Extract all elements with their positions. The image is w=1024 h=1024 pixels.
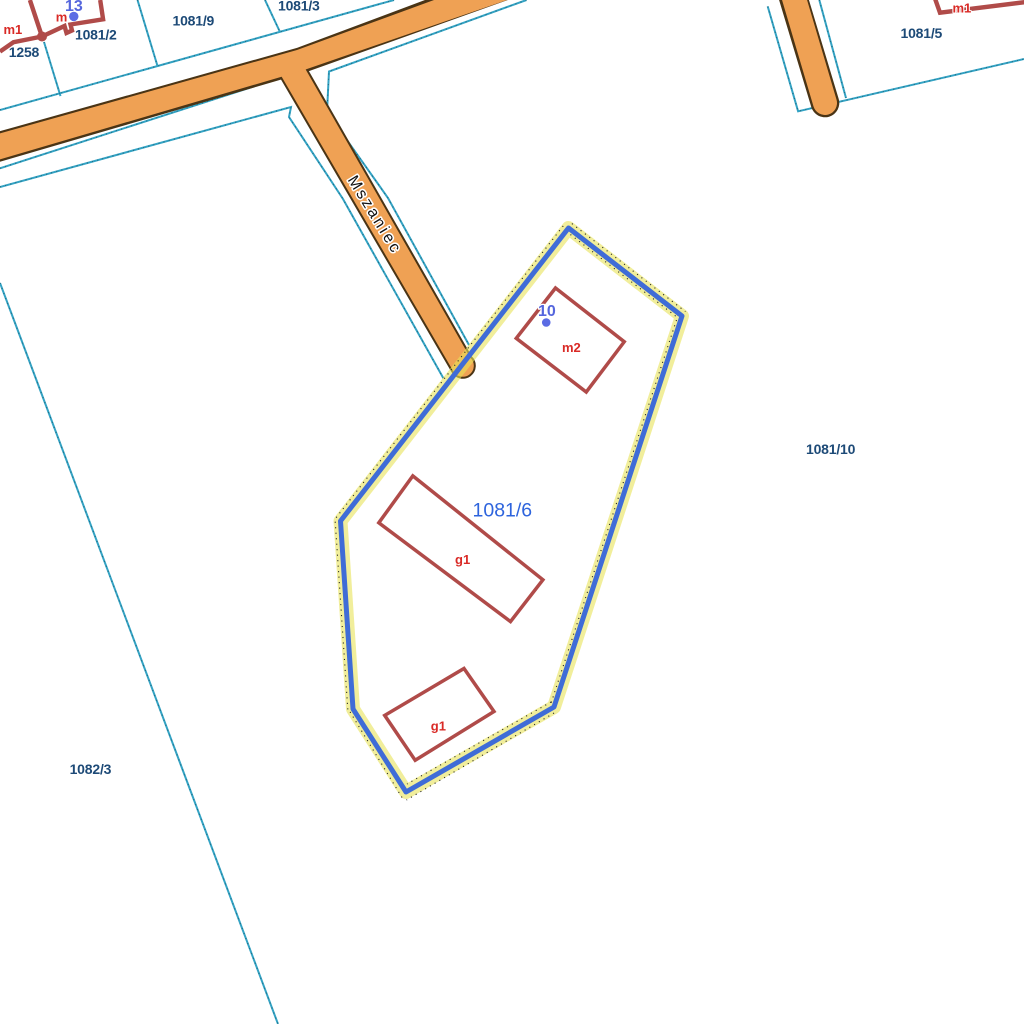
svg-text:m2: m2 xyxy=(562,340,581,355)
svg-text:m1: m1 xyxy=(953,1,972,16)
svg-text:1081/10: 1081/10 xyxy=(806,441,856,457)
svg-text:1081/3: 1081/3 xyxy=(278,0,320,14)
svg-text:g1: g1 xyxy=(431,719,446,734)
svg-text:g1: g1 xyxy=(455,552,470,567)
svg-text:1081/6: 1081/6 xyxy=(473,500,533,522)
svg-text:1082/3: 1082/3 xyxy=(70,761,112,777)
svg-text:1081/5: 1081/5 xyxy=(901,25,943,41)
svg-text:m1: m1 xyxy=(4,22,23,37)
svg-text:1081/2: 1081/2 xyxy=(75,27,117,43)
svg-text:1081/9: 1081/9 xyxy=(173,13,215,29)
svg-text:10: 10 xyxy=(538,303,556,320)
svg-text:1258: 1258 xyxy=(9,44,40,60)
